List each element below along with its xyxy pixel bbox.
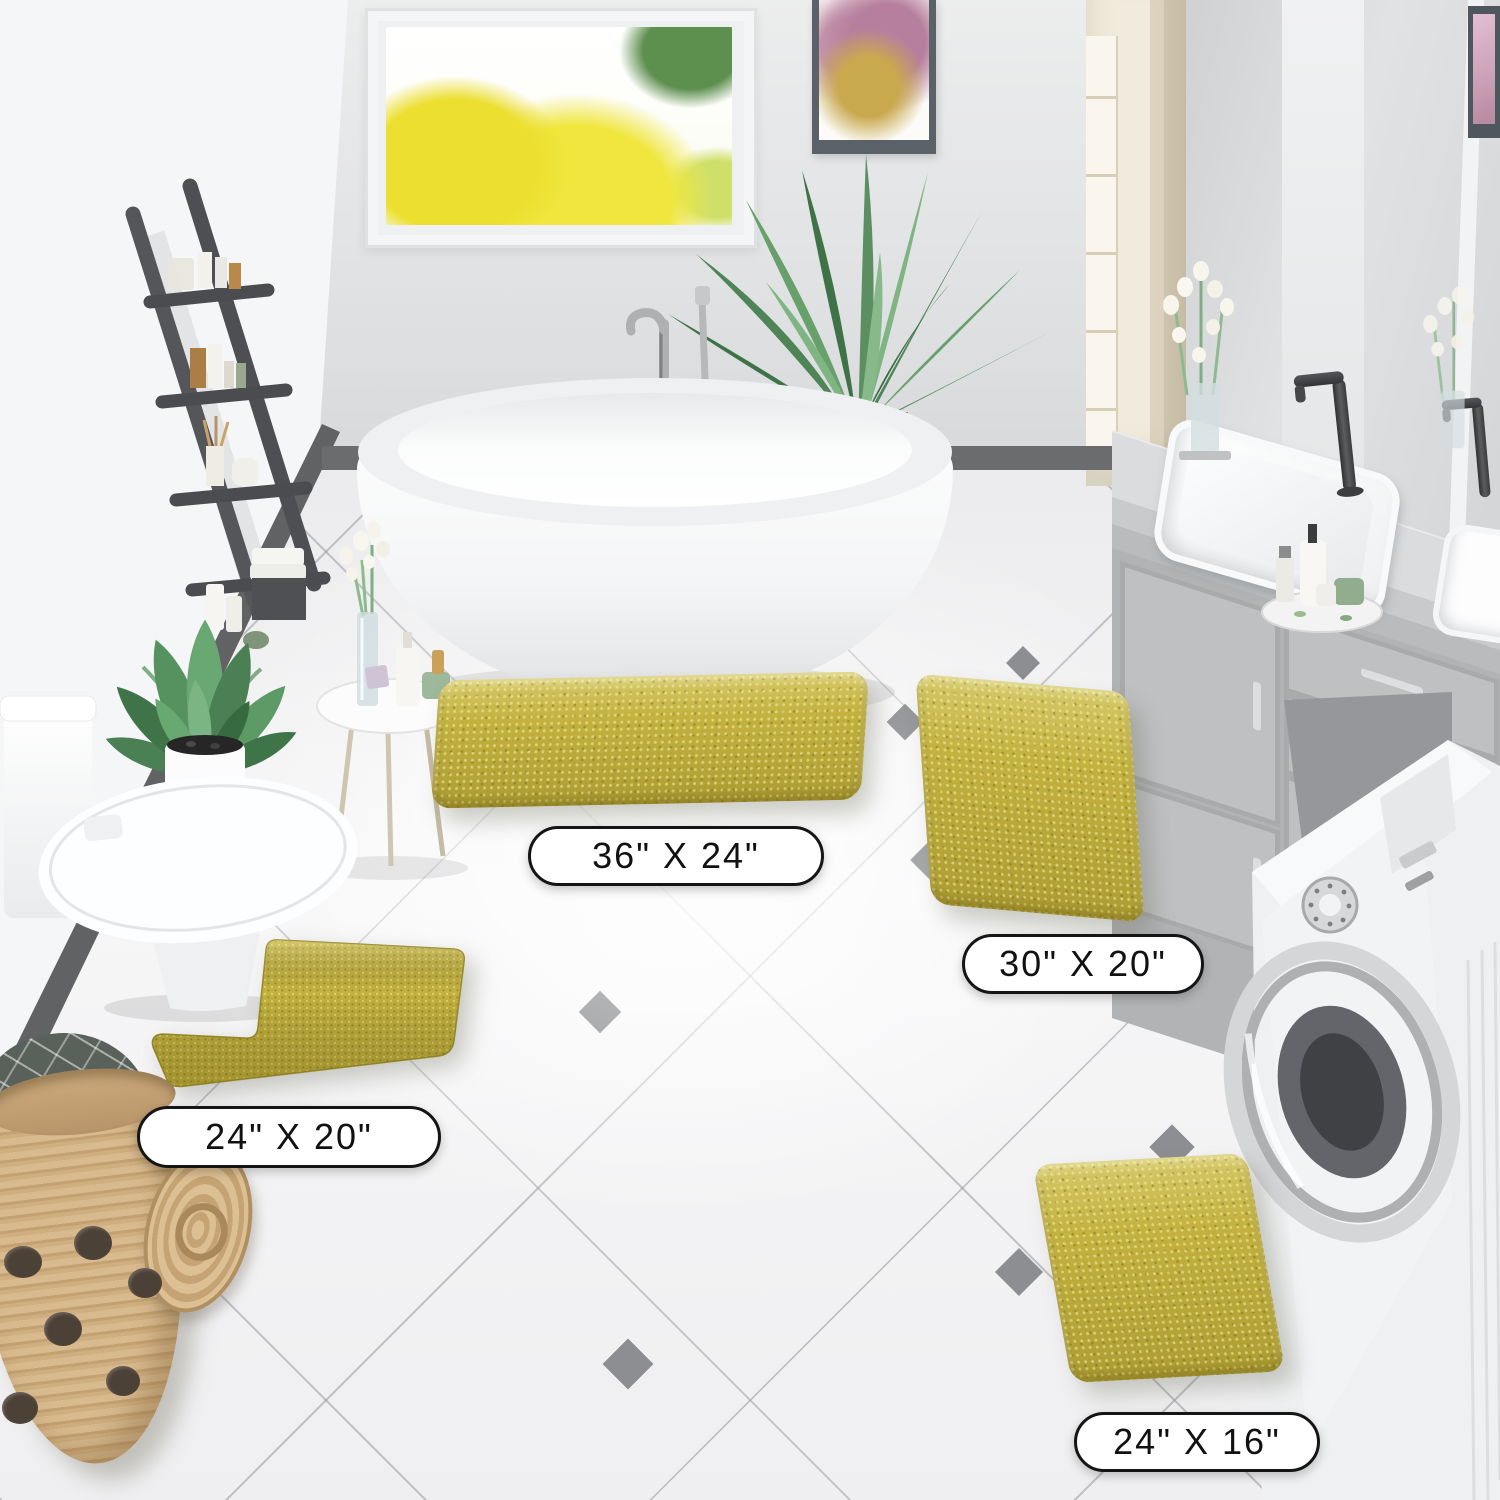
bathtub — [357, 378, 953, 720]
basket-dot — [2, 1392, 38, 1424]
size-label-text: 36" X 24" — [592, 835, 760, 877]
size-label-text: 30" X 20" — [999, 943, 1167, 985]
vanity-flower-vase — [1163, 261, 1234, 460]
contour-rug-24x20 — [130, 915, 490, 1105]
bath-rug-36x24 — [431, 671, 869, 808]
basket-dot — [128, 1268, 162, 1298]
vanity-tray-cosmetics — [1262, 524, 1382, 632]
bathroom-scene: 36" X 24" 30" X 20" 24" X 20" 24" X 16" — [0, 0, 1500, 1500]
size-label-24x20: 24" X 20" — [137, 1106, 441, 1168]
washing-machine — [1200, 692, 1500, 1500]
size-label-text: 24" X 20" — [205, 1116, 373, 1158]
basket-dot — [44, 1312, 82, 1346]
mirror-reflection-vase — [1423, 286, 1474, 448]
ladder-shelf — [133, 186, 324, 649]
size-label-text: 24" X 16" — [1113, 1421, 1281, 1463]
basket-dot — [106, 1366, 140, 1396]
bath-rug-30x20 — [915, 674, 1144, 923]
basket-dot — [4, 1246, 42, 1278]
bath-rug-24x16 — [1033, 1153, 1286, 1383]
basket-lid-handle — [169, 1198, 233, 1267]
size-label-24x16: 24" X 16" — [1074, 1412, 1320, 1472]
size-label-36x24: 36" X 24" — [528, 826, 824, 886]
size-label-30x20: 30" X 20" — [962, 934, 1204, 994]
basket-dot — [74, 1226, 112, 1260]
